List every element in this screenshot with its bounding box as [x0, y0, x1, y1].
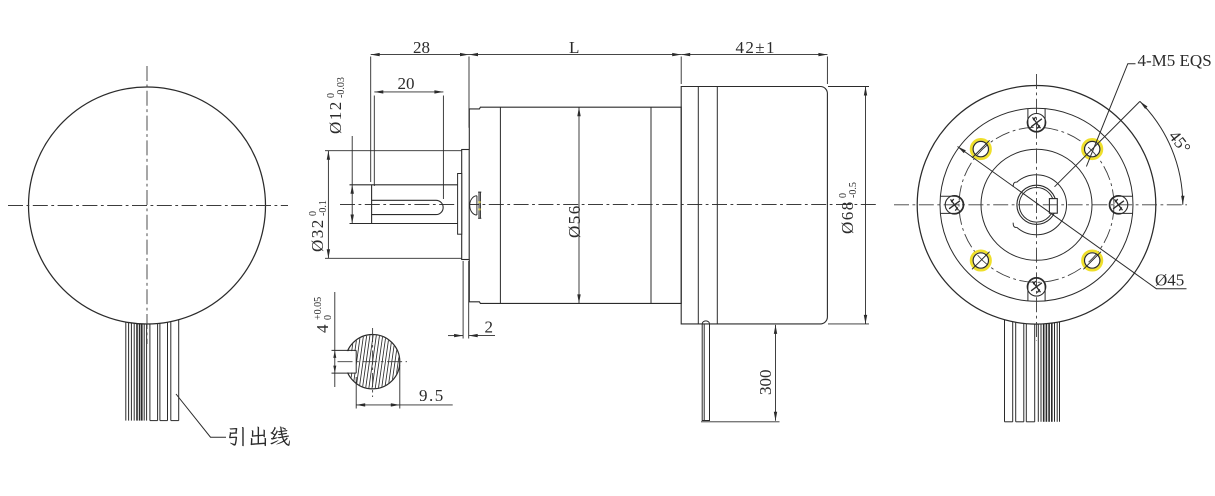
svg-text:-0.03: -0.03 — [336, 77, 347, 98]
svg-text:0: 0 — [323, 315, 334, 320]
svg-text:-0.5: -0.5 — [848, 182, 859, 198]
svg-text:4-M5 EQS: 4-M5 EQS — [1138, 51, 1212, 70]
svg-text:L: L — [569, 38, 579, 57]
svg-text:28: 28 — [413, 38, 430, 57]
svg-text:-0.1: -0.1 — [318, 200, 329, 216]
svg-text:Ø12: Ø12 — [326, 100, 345, 134]
svg-text:20: 20 — [398, 74, 415, 93]
svg-text:4: 4 — [313, 324, 332, 333]
svg-text:Ø32: Ø32 — [308, 218, 327, 252]
svg-text:Ø56: Ø56 — [565, 204, 584, 238]
svg-text:9.5: 9.5 — [419, 386, 445, 405]
svg-text:300: 300 — [756, 370, 775, 396]
svg-text:Ø68: Ø68 — [838, 200, 857, 234]
svg-text:Ø45: Ø45 — [1155, 271, 1184, 290]
svg-text:42±1: 42±1 — [736, 38, 776, 57]
svg-text:2: 2 — [485, 318, 494, 337]
